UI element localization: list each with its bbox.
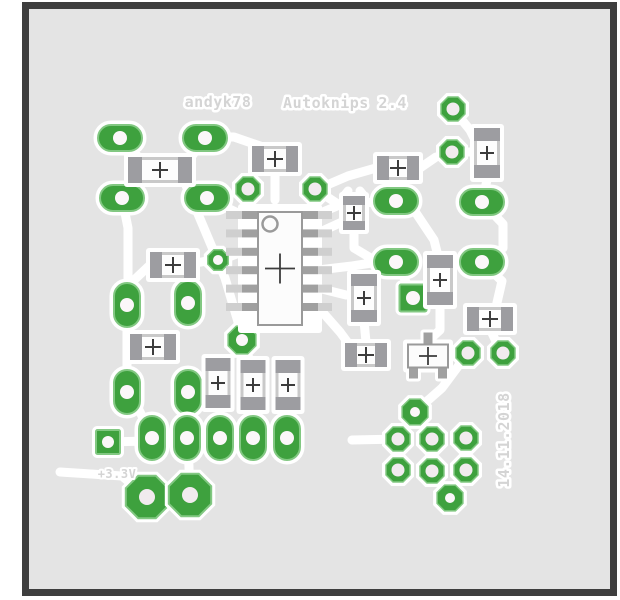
drill-hole — [181, 385, 195, 399]
drill-hole — [447, 103, 460, 116]
smd-terminal — [252, 146, 264, 172]
drill-hole — [460, 432, 473, 445]
ic-pin — [242, 266, 258, 274]
smd-terminal — [206, 395, 231, 408]
smd-terminal — [427, 292, 453, 305]
drill-hole — [426, 465, 439, 478]
smd-terminal — [375, 343, 387, 367]
smd-terminal — [474, 128, 500, 141]
drill-hole — [406, 291, 420, 305]
drill-hole — [102, 436, 114, 448]
transistor-leg — [424, 333, 433, 345]
smd-terminal — [241, 360, 266, 373]
silkscreen-voltage-label: +3.3V — [98, 467, 137, 481]
smd-terminal — [427, 255, 453, 268]
drill-hole — [113, 131, 127, 145]
smd-terminal — [474, 165, 500, 178]
ic-pin — [242, 285, 258, 293]
drill-hole — [280, 431, 294, 445]
drill-hole — [120, 298, 134, 312]
ic-pad-stub — [318, 229, 332, 237]
smd-component-vertical — [237, 356, 270, 414]
smd-terminal — [351, 310, 377, 322]
smd-component-vertical — [470, 124, 504, 182]
silkscreen-title: Autoknips 2.4 — [283, 94, 407, 112]
ic-pad-stub — [226, 285, 242, 293]
ic-pad-stub — [318, 211, 332, 219]
ic-pin — [302, 266, 318, 274]
smd-terminal — [130, 334, 142, 360]
ic-pad-stub — [226, 266, 242, 274]
drill-hole — [242, 183, 255, 196]
drill-hole — [236, 334, 248, 346]
ic-pin — [302, 285, 318, 293]
smd-component-horizontal — [126, 330, 180, 364]
smd-component-vertical — [272, 356, 305, 414]
smd-terminal — [276, 397, 301, 410]
smd-terminal — [178, 157, 192, 183]
smd-terminal — [377, 156, 389, 180]
ic-pin — [242, 229, 258, 237]
smd-terminal — [150, 252, 162, 278]
pcb-preview: andyk78 Autoknips 2.4 +3.3V 14.11.2018 — [0, 0, 620, 600]
ic-pin — [242, 248, 258, 256]
ic-pad-stub — [226, 211, 242, 219]
smd-terminal — [345, 343, 357, 367]
drill-hole — [475, 255, 489, 269]
ic-pad-stub — [318, 266, 332, 274]
drill-hole — [198, 131, 212, 145]
drill-hole — [200, 191, 214, 205]
ic-soic12 — [226, 204, 332, 333]
smd-component-vertical — [423, 251, 457, 309]
drill-hole — [182, 487, 198, 503]
pcb-canvas: andyk78 Autoknips 2.4 +3.3V 14.11.2018 — [0, 0, 620, 600]
drill-hole — [392, 464, 405, 477]
drill-hole — [460, 464, 473, 477]
smd-terminal — [343, 221, 365, 230]
smd-component-horizontal — [463, 303, 517, 335]
smd-terminal — [206, 358, 231, 371]
smd-terminal — [351, 274, 377, 286]
drill-hole — [410, 407, 420, 417]
drill-hole — [445, 493, 455, 503]
ic-pin — [302, 248, 318, 256]
ic-pin — [242, 303, 258, 311]
drill-hole — [309, 183, 322, 196]
drill-hole — [139, 489, 155, 505]
silkscreen-date: 14.11.2018 — [495, 392, 513, 487]
drill-hole — [426, 433, 439, 446]
drill-hole — [181, 296, 195, 310]
smd-component-vertical — [347, 270, 381, 326]
ic-pad-stub — [226, 248, 242, 256]
ic-pad-stub — [318, 248, 332, 256]
smd-terminal — [467, 307, 479, 331]
smd-terminal — [128, 157, 142, 183]
smd-component-horizontal — [146, 248, 200, 282]
smd-terminal — [343, 196, 365, 205]
drill-hole — [145, 431, 159, 445]
drill-hole — [475, 195, 489, 209]
drill-hole — [389, 255, 403, 269]
smd-component-horizontal — [341, 339, 391, 371]
drill-hole — [115, 191, 129, 205]
drill-hole — [213, 431, 227, 445]
ic-pad-stub — [226, 303, 242, 311]
drill-hole — [389, 194, 403, 208]
ic-pin — [302, 229, 318, 237]
drill-hole — [246, 431, 260, 445]
smd-terminal — [164, 334, 176, 360]
drill-hole — [462, 347, 475, 360]
drill-hole — [392, 433, 405, 446]
ic-pin — [242, 211, 258, 219]
smd-terminal — [501, 307, 513, 331]
ic-pad-stub — [226, 229, 242, 237]
drill-hole — [446, 146, 459, 159]
smd-component-vertical — [202, 354, 235, 412]
ic-pin — [302, 303, 318, 311]
drill-hole — [497, 347, 510, 360]
smd-component-horizontal — [248, 142, 302, 176]
drill-hole — [120, 385, 134, 399]
smd-component-horizontal — [124, 153, 196, 187]
smd-component-vertical — [339, 192, 369, 234]
silkscreen-author: andyk78 — [185, 93, 252, 111]
smd-terminal — [286, 146, 298, 172]
ic-pin — [302, 211, 318, 219]
smd-terminal — [241, 397, 266, 410]
ic-pad-stub — [318, 303, 332, 311]
smd-terminal — [184, 252, 196, 278]
smd-component-horizontal — [373, 152, 423, 184]
drill-hole — [180, 431, 194, 445]
smd-terminal — [407, 156, 419, 180]
ic-pad-stub — [318, 285, 332, 293]
drill-hole — [213, 255, 223, 265]
smd-terminal — [276, 360, 301, 373]
